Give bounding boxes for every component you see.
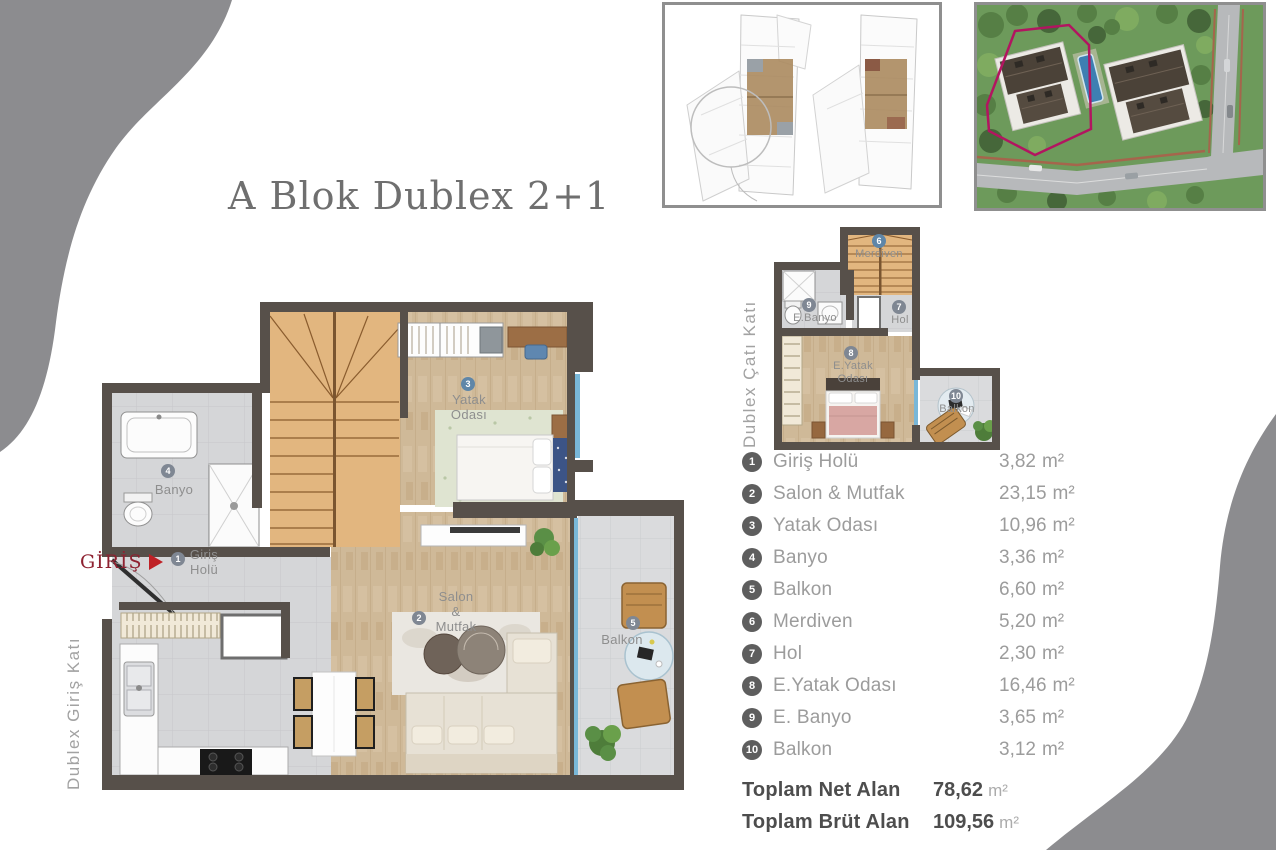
- sofa-cushion: [484, 726, 514, 744]
- legend-number-badge: 10: [742, 740, 762, 760]
- legend-room-area: 6,60m²: [999, 579, 1064, 601]
- legend-room-area: 3,12m²: [999, 739, 1064, 761]
- sofa-back: [406, 754, 557, 773]
- room-label-e-yatak-odasi: E.YatakOdası: [818, 360, 888, 386]
- pillow: [829, 393, 852, 403]
- pillow: [533, 439, 551, 465]
- floor-caption-ground: Dublex Giriş Katı: [64, 574, 84, 790]
- room-label-balkon-roof: Balkon: [926, 403, 988, 416]
- room-number-badge: 5: [626, 616, 640, 630]
- room-number-badge: 6: [872, 234, 886, 248]
- room-number-badge: 4: [161, 464, 175, 478]
- legend-room-area: 10,96m²: [999, 515, 1075, 537]
- dining-chair: [356, 678, 374, 710]
- dining-chair: [294, 716, 312, 748]
- room-label-e-banyo: E.Banyo: [782, 312, 848, 325]
- room-number-badge: 3: [461, 377, 475, 391]
- desk-chair: [525, 345, 547, 359]
- legend-room-area: 3,82m²: [999, 451, 1064, 473]
- legend-row: 2 Salon & Mutfak 23,15m²: [742, 478, 1087, 510]
- legend-row: 1 Giriş Holü 3,82m²: [742, 446, 1087, 478]
- legend-number-badge: 4: [742, 548, 762, 568]
- room-label-salon-mutfak: Salon&Mutfak: [426, 589, 486, 634]
- key-plan-left: [687, 15, 811, 201]
- room-number-badge: 10: [949, 389, 963, 403]
- legend-number-badge: 2: [742, 484, 762, 504]
- ground-floor-drawing: [100, 298, 700, 792]
- room-label-yatak-odasi: YatakOdası: [440, 392, 498, 422]
- legend-number-badge: 8: [742, 676, 762, 696]
- legend-room-name: Giriş Holü: [773, 451, 858, 473]
- desk: [508, 327, 567, 347]
- coat-rack: [121, 613, 220, 638]
- hall-mirror: [858, 297, 880, 329]
- legend-row: 5 Balkon 6,60m²: [742, 574, 1087, 606]
- nightstand: [881, 422, 894, 438]
- legend-room-area: 5,20m²: [999, 611, 1064, 633]
- legend-room-name: Balkon: [773, 739, 832, 761]
- room-number-badge: 9: [802, 298, 816, 312]
- area-legend: 1 Giriş Holü 3,82m² 2 Salon & Mutfak 23,…: [742, 446, 1087, 838]
- legend-room-name: E. Banyo: [773, 707, 852, 729]
- legend-room-name: E.Yatak Odası: [773, 675, 897, 697]
- legend-room-area: 16,46m²: [999, 675, 1075, 697]
- room-label-balkon: Balkon: [594, 632, 650, 647]
- legend-number-badge: 1: [742, 452, 762, 472]
- sofa-cushion: [412, 726, 442, 744]
- dresser: [480, 327, 502, 353]
- tv: [450, 527, 520, 533]
- stove: [200, 749, 252, 775]
- legend-room-area: 23,15m²: [999, 483, 1075, 505]
- entrance-label: GİRİŞ: [80, 551, 143, 573]
- room-label-hol: Hol: [878, 314, 922, 327]
- room-number-badge: 2: [412, 611, 426, 625]
- page-title: A Blok Dublex 2+1: [228, 174, 610, 218]
- floor-caption-roof: Dublex Çatı Katı: [740, 248, 760, 448]
- roof-floor-plan: 6 Merdiven 9 E.Banyo 7 Hol 8 E.YatakOdas…: [768, 220, 1008, 455]
- legend-room-name: Merdiven: [773, 611, 853, 633]
- legend-row: 3 Yatak Odası 10,96m²: [742, 510, 1087, 542]
- entrance-tag: GİRİŞ: [80, 551, 163, 573]
- toilet-bowl: [124, 502, 152, 526]
- legend-room-area: 2,30m²: [999, 643, 1064, 665]
- legend-number-badge: 6: [742, 612, 762, 632]
- legend-room-name: Hol: [773, 643, 802, 665]
- aerial-site-render: [977, 5, 1263, 208]
- entrance-arrow-icon: [149, 554, 163, 570]
- totals-block: Toplam Net Alan 78,62m² Toplam Brüt Alan…: [742, 774, 1087, 838]
- sofa-cushion: [448, 726, 478, 744]
- total-net-row: Toplam Net Alan 78,62m²: [742, 774, 1087, 806]
- hall-mirror: [222, 615, 286, 658]
- balcony-chair: [617, 679, 671, 729]
- aerial-render-panel: [974, 2, 1266, 211]
- total-gross-row: Toplam Brüt Alan 109,56m²: [742, 806, 1087, 838]
- ground-floor-plan: 1 GirişHolü 2 Salon&Mutfak 3 YatakOdası …: [100, 298, 700, 792]
- tub-faucet: [157, 415, 162, 420]
- legend-number-badge: 9: [742, 708, 762, 728]
- nightstand: [812, 422, 825, 438]
- legend-row: 9 E. Banyo 3,65m²: [742, 702, 1087, 734]
- legend-room-area: 3,36m²: [999, 547, 1064, 569]
- bedroom-window: [575, 374, 580, 458]
- balcony-glass-door: [914, 380, 918, 425]
- room-area-list: 1 Giriş Holü 3,82m² 2 Salon & Mutfak 23,…: [742, 446, 1087, 766]
- legend-number-badge: 3: [742, 516, 762, 536]
- room-label-banyo: Banyo: [136, 482, 212, 497]
- legend-room-name: Salon & Mutfak: [773, 483, 905, 505]
- legend-room-name: Banyo: [773, 547, 828, 569]
- floors: [112, 312, 674, 775]
- brochure-page: A Blok Dublex 2+1: [0, 0, 1276, 850]
- legend-row: 8 E.Yatak Odası 16,46m²: [742, 670, 1087, 702]
- legend-room-name: Yatak Odası: [773, 515, 878, 537]
- key-plan-schematic: [665, 5, 939, 205]
- legend-number-badge: 7: [742, 644, 762, 664]
- dining-chair: [356, 716, 374, 748]
- legend-room-name: Balkon: [773, 579, 832, 601]
- shower-drain: [230, 502, 238, 510]
- legend-number-badge: 5: [742, 580, 762, 600]
- legend-row: 6 Merdiven 5,20m²: [742, 606, 1087, 638]
- pillow: [855, 393, 877, 403]
- key-plan-right: [813, 15, 917, 193]
- room-number-badge: 8: [844, 346, 858, 360]
- room-label-merdiven: Merdiven: [844, 248, 914, 261]
- blanket: [829, 406, 877, 435]
- key-plan-panel: [662, 2, 942, 208]
- pillow: [533, 467, 551, 493]
- room-label-giris-holu: GirişHolü: [176, 547, 232, 577]
- dining-chair: [294, 678, 312, 710]
- legend-row: 4 Banyo 3,36m²: [742, 542, 1087, 574]
- legend-row: 7 Hol 2,30m²: [742, 638, 1087, 670]
- balcony-glass-door: [574, 518, 578, 775]
- legend-row: 10 Balkon 3,12m²: [742, 734, 1087, 766]
- legend-room-area: 3,65m²: [999, 707, 1064, 729]
- room-number-badge: 7: [892, 300, 906, 314]
